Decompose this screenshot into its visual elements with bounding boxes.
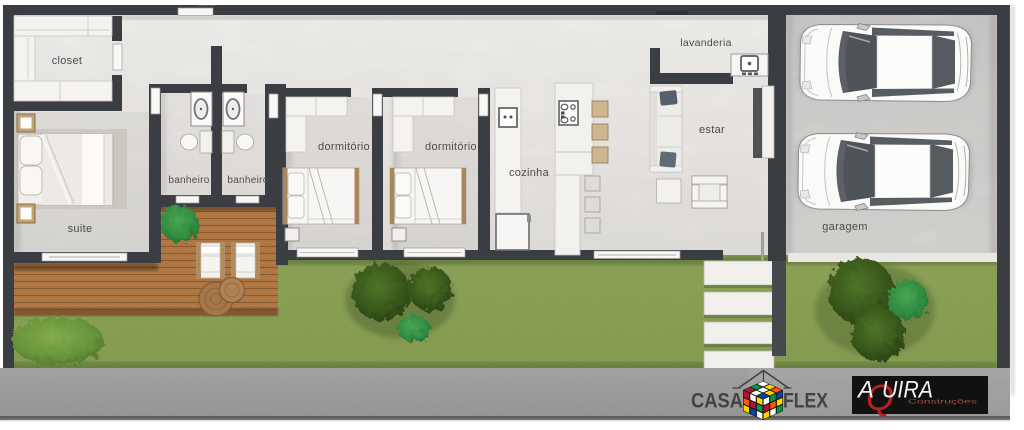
svg-text:cozinha: cozinha — [509, 167, 550, 179]
svg-text:CASA: CASA — [691, 390, 743, 413]
svg-text:banheiro: banheiro — [168, 175, 209, 186]
svg-text:FLEX: FLEX — [783, 390, 828, 413]
svg-text:suite: suite — [68, 223, 93, 235]
svg-text:A: A — [856, 377, 874, 404]
svg-text:garagem: garagem — [822, 221, 868, 233]
svg-text:banheiro: banheiro — [227, 175, 268, 186]
svg-text:dormitório: dormitório — [425, 141, 477, 153]
svg-text:lavanderia: lavanderia — [680, 37, 731, 49]
svg-text:estar: estar — [699, 124, 725, 136]
svg-text:Construções: Construções — [908, 400, 977, 406]
svg-text:dormitório: dormitório — [318, 141, 370, 153]
svg-text:closet: closet — [52, 55, 83, 67]
